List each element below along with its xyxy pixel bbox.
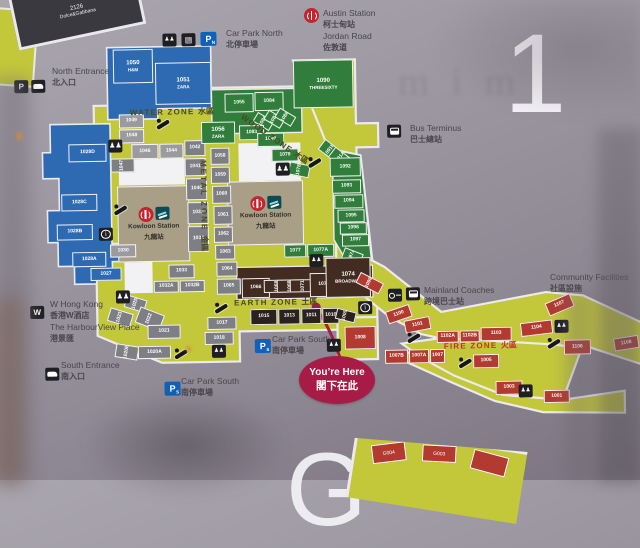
- escalator-icon: [173, 348, 190, 360]
- map-unit-1096: 1096: [340, 222, 367, 234]
- map-unit-1044: 1044: [159, 143, 183, 158]
- car-icon: [45, 368, 59, 381]
- youre-here-badge: You’re Here 閣下在此: [299, 356, 375, 404]
- metal-zone-label: METAL ZONE 金區: [199, 160, 209, 252]
- map-unit-1032B: 1032B: [180, 280, 205, 292]
- map-unit-1055: 1055: [224, 93, 253, 113]
- mtr-logo-icon: [250, 196, 265, 211]
- lift-icon: [519, 384, 533, 397]
- airport-express-logo-icon: [155, 207, 169, 220]
- escalator-icon: [457, 357, 474, 369]
- earth-zone-label: EARTH ZONE 土區: [234, 298, 318, 307]
- map-unit-1062: 1062: [214, 227, 233, 243]
- lift-icon: [162, 33, 176, 46]
- map-unit-1028C: 1028C: [61, 194, 97, 212]
- map-unit-1013: 1013: [278, 308, 300, 324]
- kowloon-station-label-cn: 九龍站: [144, 231, 164, 241]
- info-icon: [99, 228, 113, 241]
- escalator-icon: [155, 119, 172, 131]
- parking-black-icon: [14, 80, 28, 93]
- map-unit-1005: 1005: [473, 354, 499, 368]
- map-unit-1001: 1001: [544, 390, 570, 403]
- map-unit-1056: 1056ZARA: [201, 121, 235, 144]
- map-unit-1011: 1011: [301, 308, 321, 324]
- map-unit-1032A: 1032A: [154, 280, 179, 292]
- kowloon-station-block-east: Kowloon Station 九龍站: [227, 180, 304, 245]
- map-unit-1030: 1030: [110, 244, 136, 257]
- map-unit-1051: 1051ZARA: [155, 62, 212, 105]
- car-park-north-label: Car Park North 北停車場: [226, 28, 283, 50]
- mtr-logo-icon: [138, 207, 153, 222]
- map-unit-1028A: 1028A: [72, 252, 106, 268]
- map-unit-1027: 1027: [90, 267, 121, 281]
- lift-icon: [309, 254, 323, 267]
- lift-icon: [554, 320, 568, 333]
- map-unit-1017: 1017: [207, 316, 236, 330]
- map-unit-1050: 1050H&M: [113, 49, 154, 84]
- community-facilities-label: Community Facilities 社區設施: [550, 272, 628, 294]
- mtr-logo-icon: [304, 8, 319, 23]
- map-unit-1028D: 1028D: [68, 144, 106, 163]
- map-unit-1064: 1064: [216, 261, 237, 276]
- escalator-icon: [112, 204, 129, 216]
- map-unit-1007: 1007: [430, 349, 445, 363]
- water-zone-label: WATER ZONE 水區: [130, 108, 214, 117]
- toilets-icon: [108, 139, 122, 152]
- parking-n-icon: [200, 32, 216, 46]
- map-unit-1060: 1060: [212, 186, 231, 204]
- north-entrance-label: North Entrance 北入口: [52, 66, 109, 88]
- w-icon: [30, 306, 44, 319]
- map-unit-1093: 1093: [332, 179, 361, 194]
- kowloon-station-label: Kowloon Station: [128, 222, 179, 230]
- map-unit-1106: 1106: [564, 339, 591, 354]
- map-unit-1047: 1047: [111, 158, 135, 172]
- map-unit-1063: 1063: [215, 244, 235, 259]
- map-unit-1092: 1092: [330, 157, 361, 177]
- kowloon-station-label-cn: 九龍站: [256, 220, 276, 230]
- info-icon: [358, 301, 372, 314]
- map-unit-1018: 1018: [205, 332, 234, 346]
- map-unit-1094: 1094: [334, 194, 363, 209]
- toilets-icon: [276, 163, 290, 176]
- map-unit-1007B: 1007B: [385, 349, 408, 363]
- map-unit-1095: 1095: [337, 209, 364, 222]
- map-unit-1033: 1033: [168, 264, 194, 278]
- mainland-coaches-label: Mainland Coaches 跨境巴士站: [424, 285, 494, 307]
- car-icon: [31, 80, 45, 93]
- map-unit-1020A: 1020A: [138, 346, 171, 360]
- map-unit-1059: 1059: [211, 167, 230, 184]
- map-unit-1103: 1103: [481, 327, 512, 342]
- map-unit-1046: 1046: [131, 144, 158, 159]
- parking-s-icon: [164, 381, 180, 395]
- map-unit-1097: 1097: [342, 234, 369, 246]
- kowloon-station-label: Kowloon Station: [240, 211, 291, 219]
- map-unit-1007A: 1007A: [409, 349, 429, 363]
- map-unit-1008: 1008: [345, 326, 376, 350]
- austin-station-label: Austin Station 柯士甸站 Jordan Road 佐敦道: [304, 8, 375, 53]
- bus-icon: [387, 125, 401, 138]
- map-unit-1028B: 1028B: [57, 224, 93, 241]
- map-unit-1058: 1058: [210, 148, 229, 165]
- w-hong-kong-label: W Hong Kong 香港W酒店 The HarbourView Place …: [50, 299, 140, 344]
- escalator-icon: [406, 332, 423, 344]
- ticket-icon: [181, 33, 195, 46]
- escalator-icon: [546, 338, 563, 350]
- airport-express-logo-icon: [267, 196, 281, 209]
- car-park-south-label-2: Car Park South 南停車場: [181, 376, 239, 398]
- escalator-icon: [213, 303, 230, 315]
- parking-s-icon: [255, 339, 271, 353]
- map-unit-1061: 1061: [213, 206, 232, 225]
- fire-zone-label: FIRE ZONE 火區: [444, 342, 517, 351]
- map-unit-1077: 1077: [284, 244, 306, 257]
- lift-icon: [212, 345, 226, 358]
- map-unit-1021: 1021: [147, 324, 180, 339]
- mall-directory-photo: mim 1 G 2126 Dolce&Gabbana G004 G003: [0, 0, 640, 480]
- key-icon: [388, 289, 402, 302]
- bus-terminus-label: Bus Terminus 巴士總站: [410, 123, 461, 145]
- map-unit-1015: 1015: [250, 309, 277, 325]
- south-entrance-label: South Entrance 南入口: [61, 360, 120, 382]
- car-park-south-label: Car Park South 南停車場: [272, 334, 330, 356]
- map-unit-1065: 1065: [217, 278, 241, 294]
- map-unit-1090: 1090THREESIXTY: [293, 59, 354, 108]
- coach-icon: [406, 287, 420, 300]
- map-unit-1048: 1048: [119, 129, 144, 143]
